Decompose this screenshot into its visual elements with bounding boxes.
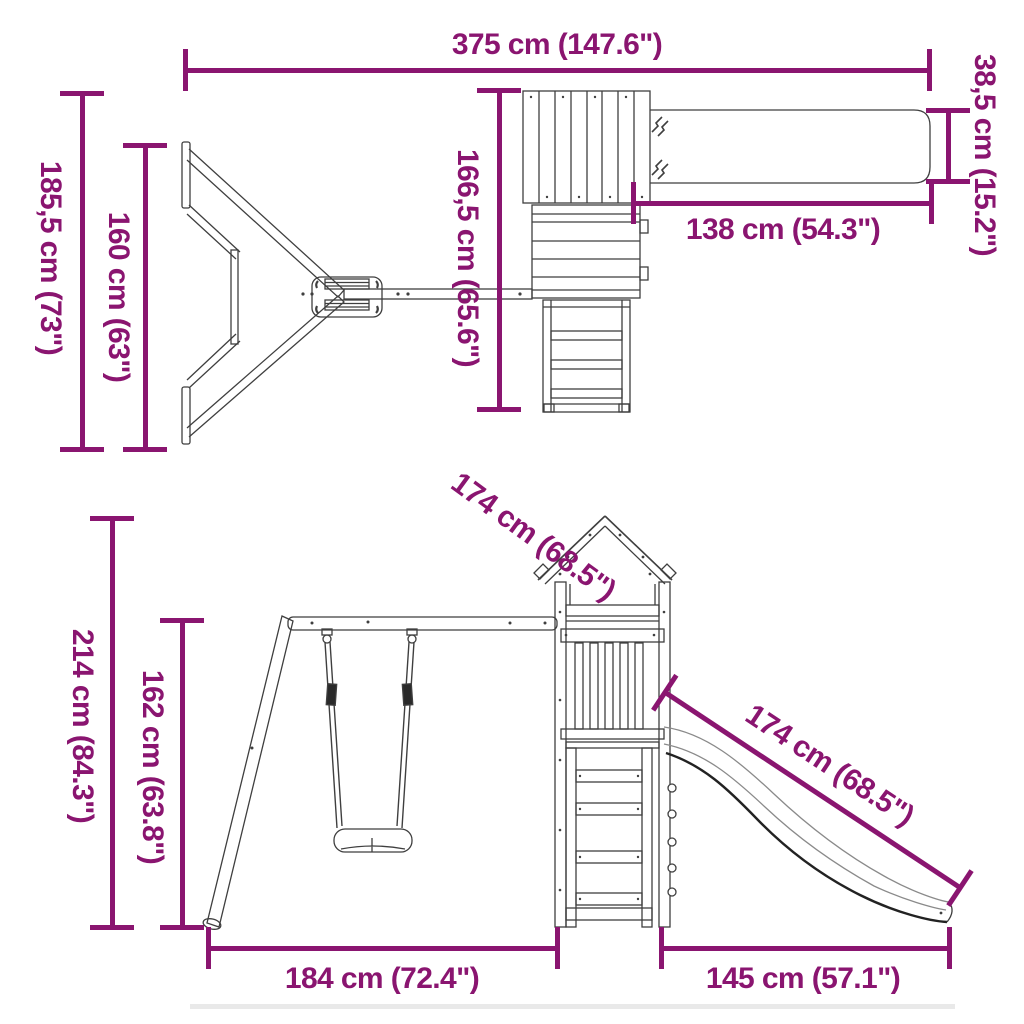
dim-tick <box>206 927 211 969</box>
dim-line <box>946 110 951 183</box>
dim-tick <box>123 447 167 452</box>
railing-slats <box>575 643 643 729</box>
platform-top <box>532 205 640 298</box>
dim-tick <box>477 407 521 412</box>
slide-top-view <box>650 110 930 183</box>
climbing-grips <box>668 784 676 896</box>
dim-tick <box>929 182 934 224</box>
dim-tick <box>926 108 970 113</box>
dim-label: 162 cm (63.8") <box>137 670 167 864</box>
dim-label: 214 cm (84.3") <box>67 629 97 823</box>
tower-top-view <box>523 91 650 412</box>
dim-tick <box>60 91 104 96</box>
dim-label: 375 cm (147.6") <box>452 30 662 60</box>
ladder-top <box>543 300 630 412</box>
swing-seat-side <box>334 829 412 852</box>
dim-line <box>497 90 502 412</box>
dim-line <box>633 201 932 206</box>
dim-label: 145 cm (57.1") <box>706 964 900 994</box>
dimension-diagram: 375 cm (147.6") 185,5 cm (73") 160 cm (6… <box>0 0 1024 1024</box>
swing-beam-side <box>288 617 557 630</box>
dim-label: 138 cm (54.3") <box>686 215 880 245</box>
dim-tick <box>477 88 521 93</box>
dim-line <box>143 145 148 450</box>
swing-leg <box>207 616 293 927</box>
dim-tick <box>123 143 167 148</box>
dim-tick <box>90 925 134 930</box>
dim-line <box>208 946 558 951</box>
dim-line <box>80 93 85 450</box>
dim-label: 184 cm (72.4") <box>285 964 479 994</box>
dim-tick <box>555 927 560 969</box>
dim-tick <box>90 516 134 521</box>
dim-tick <box>160 618 204 623</box>
swing-side-view <box>202 616 557 931</box>
swing-rope-left <box>325 642 342 828</box>
dim-tick <box>160 925 204 930</box>
ground-shadow <box>190 1004 955 1009</box>
dim-line <box>180 620 185 928</box>
dim-tick <box>60 447 104 452</box>
dim-tick <box>927 49 932 91</box>
dim-tick <box>631 182 636 224</box>
dim-label: 166,5 cm (65.6") <box>452 149 482 367</box>
dim-line <box>661 946 950 951</box>
dim-label: 185,5 cm (73") <box>35 161 65 355</box>
swing-rope-right <box>397 642 414 828</box>
dim-tick <box>659 927 664 969</box>
ladder-side <box>566 748 652 927</box>
dim-label: 38,5 cm (15.2") <box>969 54 999 256</box>
dim-tick <box>947 927 952 969</box>
dim-tick <box>926 179 970 184</box>
dim-line <box>110 518 115 928</box>
dim-tick <box>183 49 188 91</box>
dim-line <box>185 68 930 73</box>
swing-beam-top <box>344 289 532 299</box>
dim-label: 160 cm (63") <box>103 212 133 382</box>
